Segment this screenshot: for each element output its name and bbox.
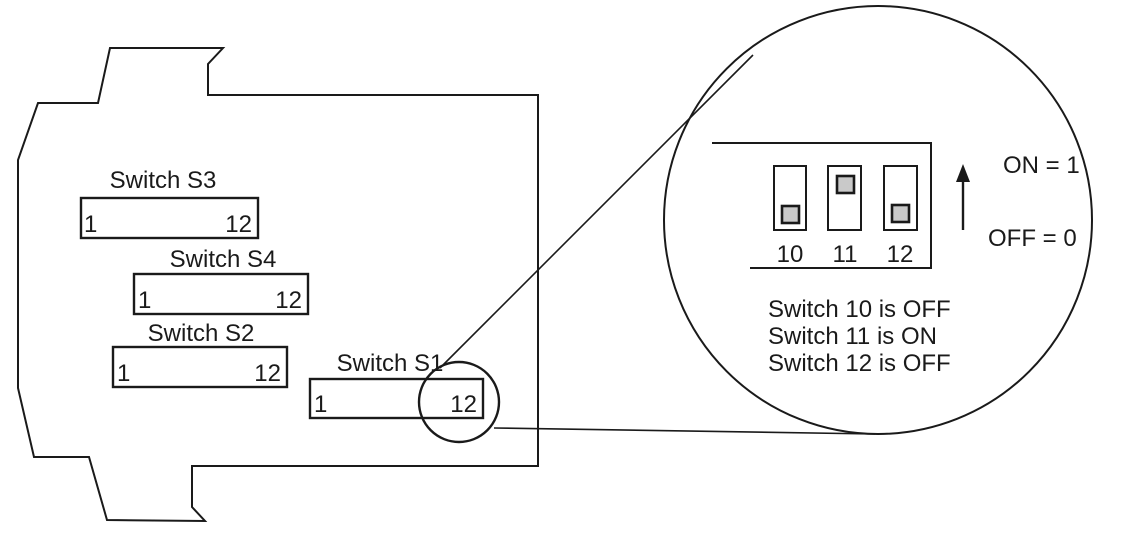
switch-s1-first-position: 1 xyxy=(314,391,327,418)
switch-s4-last-position: 12 xyxy=(275,287,302,314)
switch-block-s4: Switch S4 1 12 xyxy=(134,246,308,314)
status-line-switch-10: Switch 10 is OFF xyxy=(768,296,951,323)
switch-block-s2: Switch S2 1 12 xyxy=(113,320,287,387)
device-outline xyxy=(18,48,538,521)
switch-s3-first-position: 1 xyxy=(84,211,97,238)
dip-slot-10-label: 10 xyxy=(777,241,804,268)
dip-slot-11: 11 xyxy=(828,166,861,268)
legend-off: OFF = 0 xyxy=(988,225,1077,252)
callout-line-upper xyxy=(440,55,753,368)
legend-on: ON = 1 xyxy=(1003,152,1080,179)
status-line-switch-11: Switch 11 is ON xyxy=(768,323,937,350)
switch-block-s3: Switch S3 1 12 xyxy=(81,167,258,238)
switch-s4-first-position: 1 xyxy=(138,287,151,314)
switch-s1-label: Switch S1 xyxy=(337,350,444,377)
on-direction-arrow-icon xyxy=(956,164,970,230)
switch-block-s1: Switch S1 1 12 xyxy=(310,350,483,418)
switch-s4-label: Switch S4 xyxy=(170,246,277,273)
dip-slot-12-knob-icon xyxy=(892,205,909,222)
dip-slot-10-knob-icon xyxy=(782,206,799,223)
switch-s1-last-position: 12 xyxy=(450,391,477,418)
dip-switch-diagram: Switch S3 1 12 Switch S4 1 12 Switch S2 … xyxy=(0,0,1133,538)
switch-s3-last-position: 12 xyxy=(225,211,252,238)
switch-s2-first-position: 1 xyxy=(117,360,130,387)
switch-s2-last-position: 12 xyxy=(254,360,281,387)
dip-slot-10: 10 xyxy=(774,166,806,268)
dip-slot-11-label: 11 xyxy=(833,241,858,268)
dip-slot-12: 12 xyxy=(884,166,917,268)
switch-s3-label: Switch S3 xyxy=(110,167,217,194)
dip-slot-12-label: 12 xyxy=(887,241,914,268)
status-line-switch-12: Switch 12 is OFF xyxy=(768,350,951,377)
switch-s2-label: Switch S2 xyxy=(148,320,255,347)
diagram-svg: Switch S3 1 12 Switch S4 1 12 Switch S2 … xyxy=(0,0,1133,538)
dip-slot-11-knob-icon xyxy=(837,176,854,193)
callout-line-lower xyxy=(494,428,875,434)
